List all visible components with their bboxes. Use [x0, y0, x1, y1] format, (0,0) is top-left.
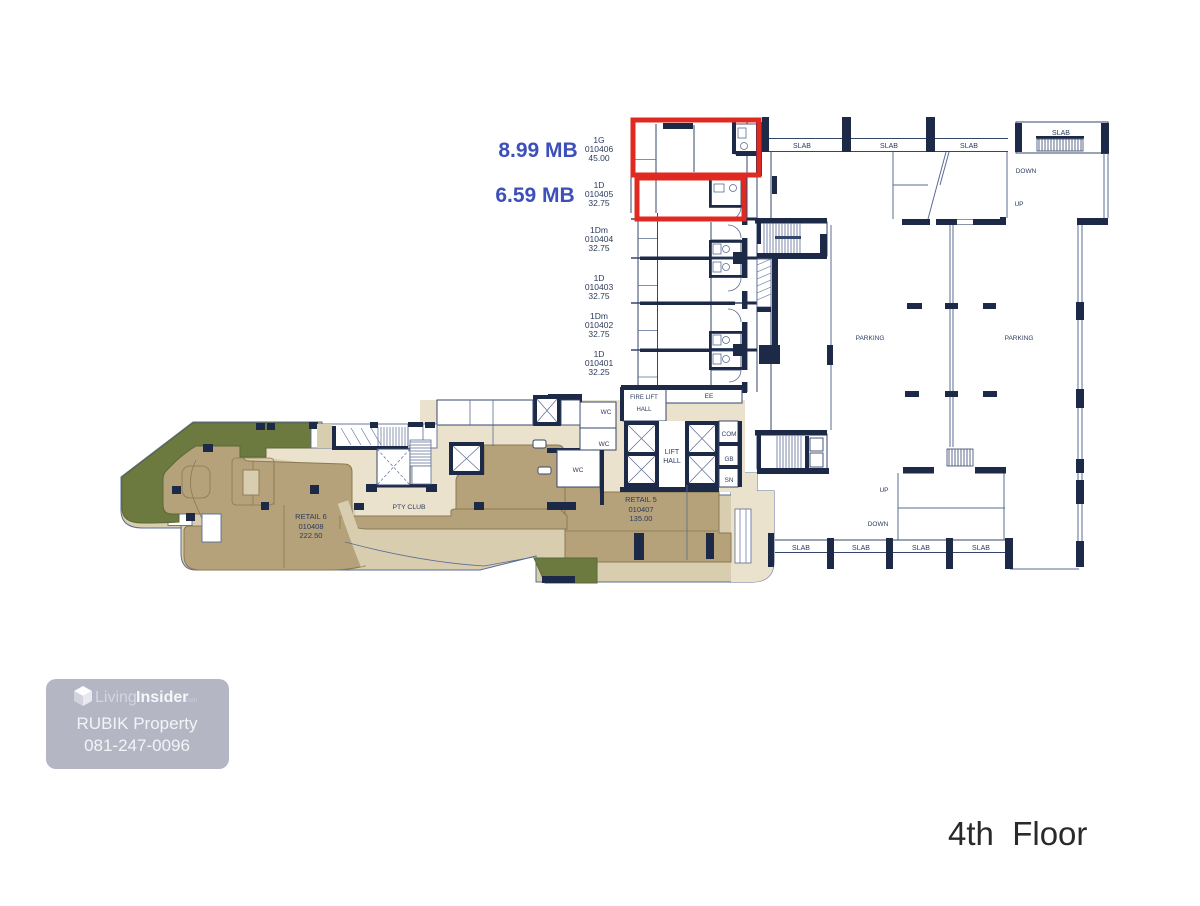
svg-text:FIRE LIFT: FIRE LIFT	[630, 395, 658, 401]
svg-text:010407: 010407	[628, 505, 653, 514]
svg-text:32.75: 32.75	[588, 243, 610, 253]
svg-text:135.00: 135.00	[630, 514, 653, 523]
svg-text:8.99 MB: 8.99 MB	[498, 139, 577, 162]
svg-text:HALL: HALL	[636, 407, 652, 413]
svg-text:RETAIL 5: RETAIL 5	[625, 495, 657, 504]
svg-text:SLAB: SLAB	[1052, 130, 1070, 137]
svg-text:SLAB: SLAB	[792, 545, 810, 552]
svg-text:PARKING: PARKING	[1005, 335, 1034, 342]
svg-text:RUBIK Property: RUBIK Property	[77, 714, 198, 733]
svg-text:SLAB: SLAB	[960, 143, 978, 150]
svg-text:DOWN: DOWN	[868, 521, 889, 528]
svg-text:32.75: 32.75	[588, 329, 610, 339]
svg-text:PTY CLUB: PTY CLUB	[392, 504, 426, 511]
svg-text:SLAB: SLAB	[793, 143, 811, 150]
svg-text:32.75: 32.75	[588, 198, 610, 208]
svg-text:SLAB: SLAB	[972, 545, 990, 552]
svg-text:Insider: Insider	[136, 689, 188, 706]
svg-text:RETAIL 6: RETAIL 6	[295, 512, 327, 521]
svg-text:45.00: 45.00	[588, 153, 610, 163]
svg-text:4th Floor: 4th Floor	[948, 815, 1087, 852]
svg-text:HALL: HALL	[663, 458, 681, 465]
svg-text:GB: GB	[724, 456, 733, 463]
svg-text:LIFT: LIFT	[665, 449, 680, 456]
svg-text:WC: WC	[601, 409, 612, 416]
svg-text:WC: WC	[599, 441, 610, 448]
svg-text:.com: .com	[184, 698, 197, 704]
svg-text:SLAB: SLAB	[880, 143, 898, 150]
svg-text:Living: Living	[95, 689, 137, 706]
svg-text:UP: UP	[1014, 201, 1023, 208]
svg-text:EE: EE	[705, 393, 714, 400]
svg-text:081-247-0096: 081-247-0096	[84, 736, 190, 755]
svg-text:010408: 010408	[298, 522, 323, 531]
svg-text:DOWN: DOWN	[1016, 168, 1037, 175]
svg-text:32.25: 32.25	[588, 367, 610, 377]
svg-text:6.59 MB: 6.59 MB	[495, 184, 574, 207]
svg-text:SLAB: SLAB	[912, 545, 930, 552]
svg-text:SN: SN	[725, 477, 734, 484]
svg-text:SLAB: SLAB	[852, 545, 870, 552]
svg-text:COM: COM	[722, 431, 737, 438]
svg-text:WC: WC	[573, 467, 584, 474]
svg-text:PARKING: PARKING	[856, 335, 885, 342]
svg-text:222.50: 222.50	[300, 531, 323, 540]
svg-text:UP: UP	[879, 487, 888, 494]
svg-text:32.75: 32.75	[588, 291, 610, 301]
